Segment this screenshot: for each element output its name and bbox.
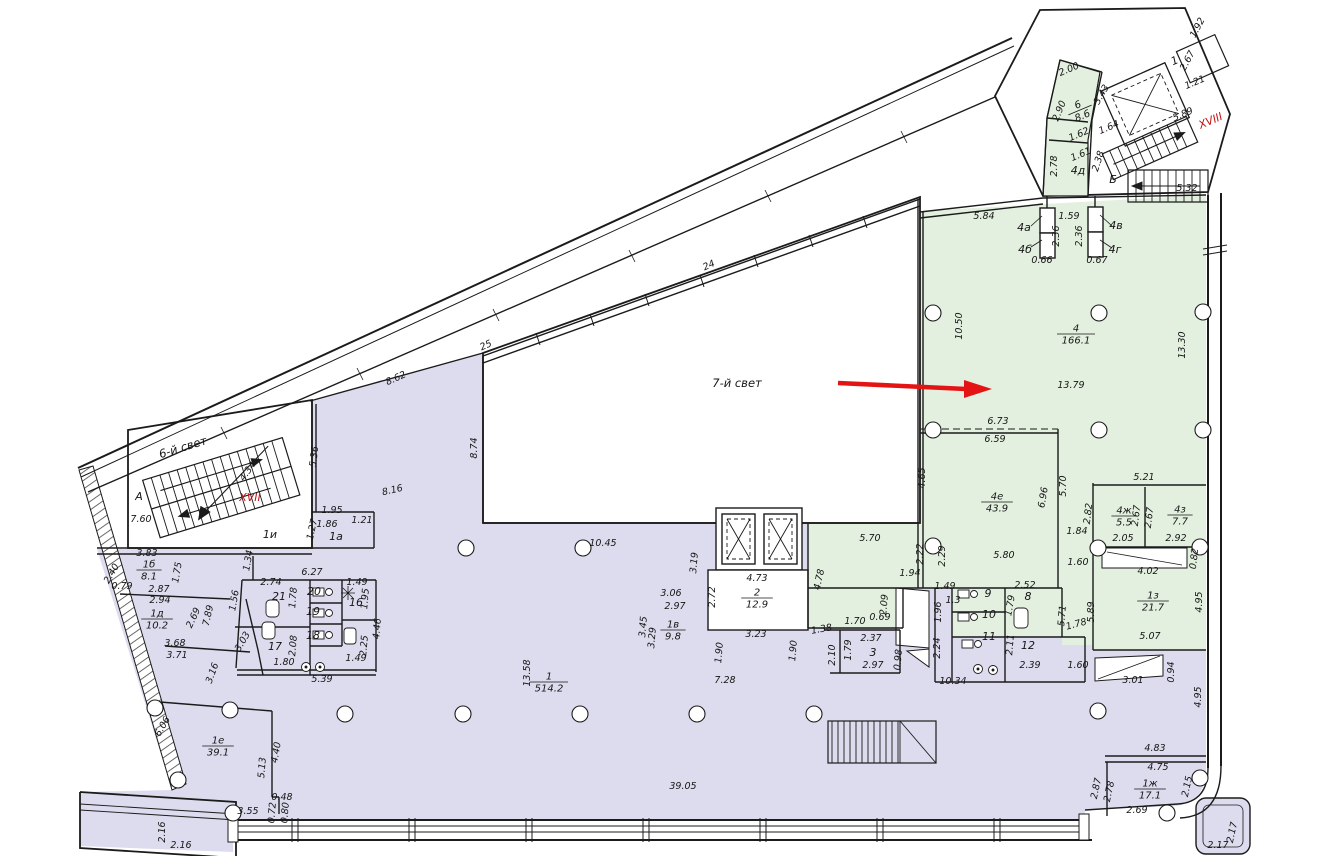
dimension-label: 1.59 <box>1058 211 1079 222</box>
dimension-label: 10.50 <box>954 312 965 339</box>
room-number: 2 <box>754 588 760 599</box>
floor-plan-page: 2.002.903.431.641.621.612.782.38Б5.325.8… <box>0 0 1332 856</box>
dimension-label: 1.79 <box>843 639 854 660</box>
room-area: 166.1 <box>1062 336 1091 347</box>
dimension-label: 3.19 <box>688 552 701 574</box>
sink-icon <box>316 663 325 672</box>
dimension-label: 5.84 <box>973 211 994 222</box>
dimension-label: 4.83 <box>1144 743 1165 754</box>
toilet-icon <box>958 613 978 621</box>
dimension-label: 2.97 <box>664 601 685 612</box>
dimension-label: 4.46 <box>371 618 384 640</box>
dimension-label: 3.23 <box>745 629 766 640</box>
basin-icon <box>262 622 275 639</box>
dimension-label: 5.70 <box>1058 475 1069 496</box>
room-number-label: 4б <box>1018 243 1032 256</box>
floor-plan-drawing: 2.002.903.431.641.621.612.782.38Б5.325.8… <box>0 0 1332 856</box>
sink-icon <box>974 665 983 674</box>
dimension-label: 1.90 <box>787 640 800 662</box>
dimension-label: 1.92 <box>1188 16 1208 40</box>
room-area: 9.8 <box>665 632 681 643</box>
dimension-label: 2.08 <box>287 635 300 657</box>
dimension-label: 0.72 <box>266 802 279 824</box>
dimension-label: 4.95 <box>1193 686 1204 707</box>
block-stair-xvii <box>128 400 312 548</box>
dimension-label: 1.95 <box>321 505 342 516</box>
dimension-label: 2.22 <box>915 543 926 564</box>
dimension-label: 2.69 <box>1126 805 1147 816</box>
basin-icon <box>1014 608 1028 628</box>
dimension-label: 1.84 <box>1066 526 1087 537</box>
dimension-label: 0.80 <box>279 802 292 824</box>
dimension-label: 1.49 <box>346 577 367 588</box>
atrium-void <box>483 197 920 523</box>
dimension-label: 2.87 <box>148 584 169 595</box>
dimension-label: 0.94 <box>1166 661 1177 682</box>
dimension-label: 5.21 <box>1133 472 1154 483</box>
zone-green-hall4 <box>920 195 1206 650</box>
dimension-label: 2.16 <box>170 840 191 851</box>
dimension-label: 4.75 <box>1147 762 1168 773</box>
dimension-label: 2.74 <box>260 577 281 588</box>
dimension-label: 0.66 <box>1031 255 1052 266</box>
room-number-label: 9 <box>985 587 992 600</box>
dimension-label: 8.74 <box>469 437 480 458</box>
dimension-label: 1.80 <box>273 657 294 668</box>
room-number-label: 17 <box>268 640 282 653</box>
dimension-label: 2.05 <box>1112 533 1133 544</box>
closet-white <box>896 588 929 648</box>
room-number-label: 19 <box>306 605 320 618</box>
room-area: 17.1 <box>1139 791 1161 802</box>
dimension-label: 1.49 <box>345 653 366 664</box>
elevator-block <box>716 508 802 570</box>
room-number-label: 8 <box>1025 590 1032 603</box>
dimension-label: 4.73 <box>746 573 767 584</box>
dimension-label: 1.70 <box>844 616 865 627</box>
room-number-label: А <box>134 490 143 503</box>
dimension-label: 1.49 <box>934 581 955 592</box>
dimension-label: 4.65 <box>917 467 928 488</box>
room-number-label: 21 <box>272 590 286 603</box>
dimension-label: 0.67 <box>1086 255 1107 266</box>
dimension-label: 1.60 <box>1067 660 1088 671</box>
room-number: 4ж <box>1116 506 1131 517</box>
dimension-label: 1.95 <box>359 588 372 610</box>
dimension-label: 13.79 <box>1057 380 1084 391</box>
room-area: 10.2 <box>146 621 168 632</box>
room-number-label: 20 <box>307 585 321 598</box>
room-number: 4е <box>991 492 1004 503</box>
room-area: 8.1 <box>141 572 157 583</box>
dimension-label: 2.36 <box>1074 225 1085 246</box>
dimension-label: 7.28 <box>714 675 735 686</box>
sink-icon <box>302 663 311 672</box>
room-area: 39.1 <box>207 748 229 759</box>
dimension-label: 0.69 <box>869 612 890 623</box>
dimension-label: 5.13 <box>256 757 269 779</box>
room-number: 4з <box>1174 505 1186 516</box>
dimension-label: 5.07 <box>1139 631 1160 642</box>
room-number-label: 3 <box>870 646 877 659</box>
room-number: 1д <box>150 609 163 620</box>
dimension-label: 2.78 <box>1049 155 1060 176</box>
dimension-label: 2.36 <box>1051 225 1062 246</box>
room-number-label: 4д <box>1071 164 1086 177</box>
dimension-label: 2.94 <box>149 595 170 606</box>
room-number: 4 <box>1073 324 1079 335</box>
dimension-label: 1.78 <box>287 587 300 609</box>
dimension-label: 39.05 <box>669 781 696 792</box>
dimension-label: 5.80 <box>993 550 1014 561</box>
room-number: 1 <box>546 672 552 683</box>
dimension-label: 0.79 <box>111 581 132 592</box>
dimension-label: 6.73 <box>987 416 1008 427</box>
room-number-label: 4г <box>1109 243 1122 256</box>
dimension-label: 5.89 <box>1086 601 1097 622</box>
dimension-label: 7.60 <box>130 514 151 525</box>
dimension-label: 2.17 <box>1207 840 1228 851</box>
toilet-icon <box>962 640 982 648</box>
dimension-label: 10.45 <box>589 538 616 549</box>
toilet-icon <box>958 590 978 598</box>
dimension-label: 3.68 <box>164 638 185 649</box>
room-area: 7.7 <box>1172 517 1189 528</box>
dimension-label: 13.58 <box>522 659 533 686</box>
dimension-label: 2.39 <box>1019 660 1040 671</box>
dimension-label: 2.97 <box>862 660 883 671</box>
room-number: 1б <box>143 559 156 571</box>
dimension-label: 1.3 <box>945 595 960 606</box>
room-area: 12.9 <box>746 600 768 611</box>
dimension-label: 1.94 <box>899 568 920 579</box>
dimension-label: 3.06 <box>660 588 681 599</box>
dimension-label: 2.29 <box>937 545 948 566</box>
dimension-label: 3.01 <box>1122 675 1143 686</box>
dimension-label: 2.10 <box>827 644 838 665</box>
room-area: 43.9 <box>986 504 1008 515</box>
dimension-label: 3.83 <box>136 548 157 559</box>
atrium-label: 7-й свет <box>712 376 762 390</box>
room-number-label: 11 <box>982 630 996 643</box>
dimension-label: 1.90 <box>713 642 726 664</box>
dimension-label: 13.30 <box>1177 331 1188 358</box>
dimension-label: 2.16 <box>157 821 168 842</box>
dimension-label: 6.27 <box>301 567 322 578</box>
stair-xvii-label: XVII <box>238 491 261 504</box>
dimension-label: 2.11 <box>1004 634 1017 656</box>
dimension-label: 10.34 <box>939 676 966 687</box>
room-number-label: 1а <box>329 530 343 543</box>
dimension-label: 3.55 <box>237 806 258 817</box>
room-number-label: 12 <box>1021 639 1035 652</box>
room-number-label: 4а <box>1017 221 1031 234</box>
dimension-label: 5.32 <box>1176 183 1197 194</box>
dimension-label: 1.96 <box>933 601 944 622</box>
room-number: 1з <box>1147 591 1159 602</box>
sink-icon <box>989 666 998 675</box>
room-number-label: 10 <box>982 608 996 621</box>
dimension-label: 1.21 <box>351 515 372 526</box>
room-number-label: Б <box>1109 173 1117 186</box>
room-number-label: 4в <box>1109 219 1122 232</box>
room-area: 5.5 <box>1116 518 1132 529</box>
dimension-label: 3.71 <box>166 650 187 661</box>
dimension-label: 0.98 <box>892 649 905 671</box>
dimension-label: 2.92 <box>1165 533 1186 544</box>
dimension-label: 5.70 <box>859 533 880 544</box>
dimension-label: 1.60 <box>1067 557 1088 568</box>
room-number-label: 1и <box>263 528 277 541</box>
room-area: 21.7 <box>1142 603 1165 614</box>
dimension-label: 2.24 <box>932 637 943 658</box>
dimension-label: 5.39 <box>311 674 332 685</box>
dimension-label: 4.02 <box>1137 566 1158 577</box>
room-number-label: 18 <box>306 629 320 642</box>
room-number: 1в <box>667 620 679 631</box>
dimension-label: 2.72 <box>707 586 718 607</box>
room-number: 1ж <box>1142 779 1157 790</box>
dimension-label: 4.95 <box>1194 591 1205 612</box>
dimension-label: 6.59 <box>984 434 1005 445</box>
dimension-label: 2.37 <box>860 633 881 644</box>
dimension-label: 3.29 <box>646 627 659 649</box>
basin-icon <box>344 628 356 644</box>
dimension-label: 0.48 <box>271 792 292 803</box>
room-number: 1е <box>212 736 225 747</box>
room-area: 514.2 <box>535 684 564 695</box>
wardrobe-counter <box>1102 548 1187 568</box>
